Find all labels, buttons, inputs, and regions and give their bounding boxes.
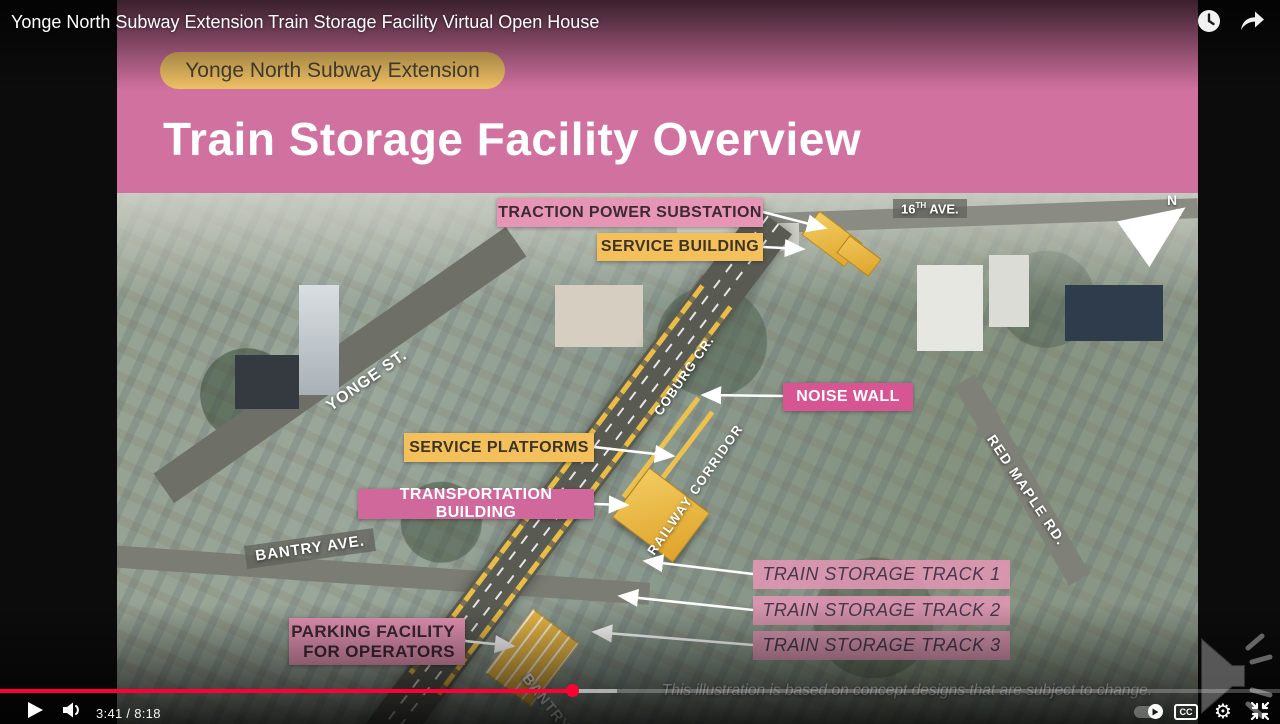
label-service-building: SERVICE BUILDING (597, 233, 763, 261)
label-train-storage-track-3: TRAIN STORAGE TRACK 3 (753, 631, 1010, 660)
volume-icon[interactable] (62, 702, 86, 718)
map-building (555, 285, 643, 347)
map-building (917, 265, 983, 351)
video-frame[interactable]: 16TH AVE. YONGE ST. COBURG CR. RAILWAY C… (117, 0, 1198, 724)
map-building (299, 285, 339, 395)
label-parking-facility: PARKING FACILITY FOR OPERATORS (289, 618, 465, 665)
label-train-storage-track-2: TRAIN STORAGE TRACK 2 (753, 596, 1010, 625)
progress-played (0, 689, 572, 693)
settings-gear-icon[interactable]: ⚙ (1214, 701, 1232, 721)
captions-button[interactable]: CC (1174, 704, 1198, 720)
progress-scrubber[interactable] (566, 684, 579, 697)
progress-bar[interactable] (0, 689, 1280, 693)
player-controls: 3:41 / 8:18 CC ⚙ (0, 698, 1280, 724)
play-button[interactable] (26, 701, 44, 719)
aerial-map (117, 193, 1198, 724)
label-train-storage-track-1: TRAIN STORAGE TRACK 1 (753, 560, 1010, 589)
autoplay-knob (1148, 704, 1163, 719)
label-noise-wall: NOISE WALL (783, 383, 913, 411)
road-bantry-ave (117, 545, 650, 605)
youtube-player: 16TH AVE. YONGE ST. COBURG CR. RAILWAY C… (0, 0, 1280, 724)
label-traction-power-substation: TRACTION POWER SUBSTATION (497, 198, 763, 227)
fullscreen-exit-icon[interactable] (1250, 701, 1270, 721)
map-building (235, 355, 299, 409)
map-building (1065, 285, 1163, 341)
label-service-platforms: SERVICE PLATFORMS (404, 433, 594, 462)
watch-later-icon[interactable] (1196, 8, 1222, 34)
video-title-link[interactable]: Yonge North Subway Extension Train Stora… (11, 12, 599, 33)
slide-badge: Yonge North Subway Extension (160, 52, 505, 89)
map-building (989, 255, 1029, 327)
autoplay-toggle[interactable] (1134, 706, 1162, 718)
label-transportation-building: TRANSPORTATION BUILDING (358, 489, 594, 519)
compass-north-label: N (1167, 192, 1177, 208)
street-label-16th-ave: 16TH AVE. (893, 199, 967, 218)
time-display: 3:41 / 8:18 (96, 706, 161, 721)
slide-title: Train Storage Facility Overview (163, 112, 861, 166)
share-icon[interactable] (1238, 8, 1266, 34)
